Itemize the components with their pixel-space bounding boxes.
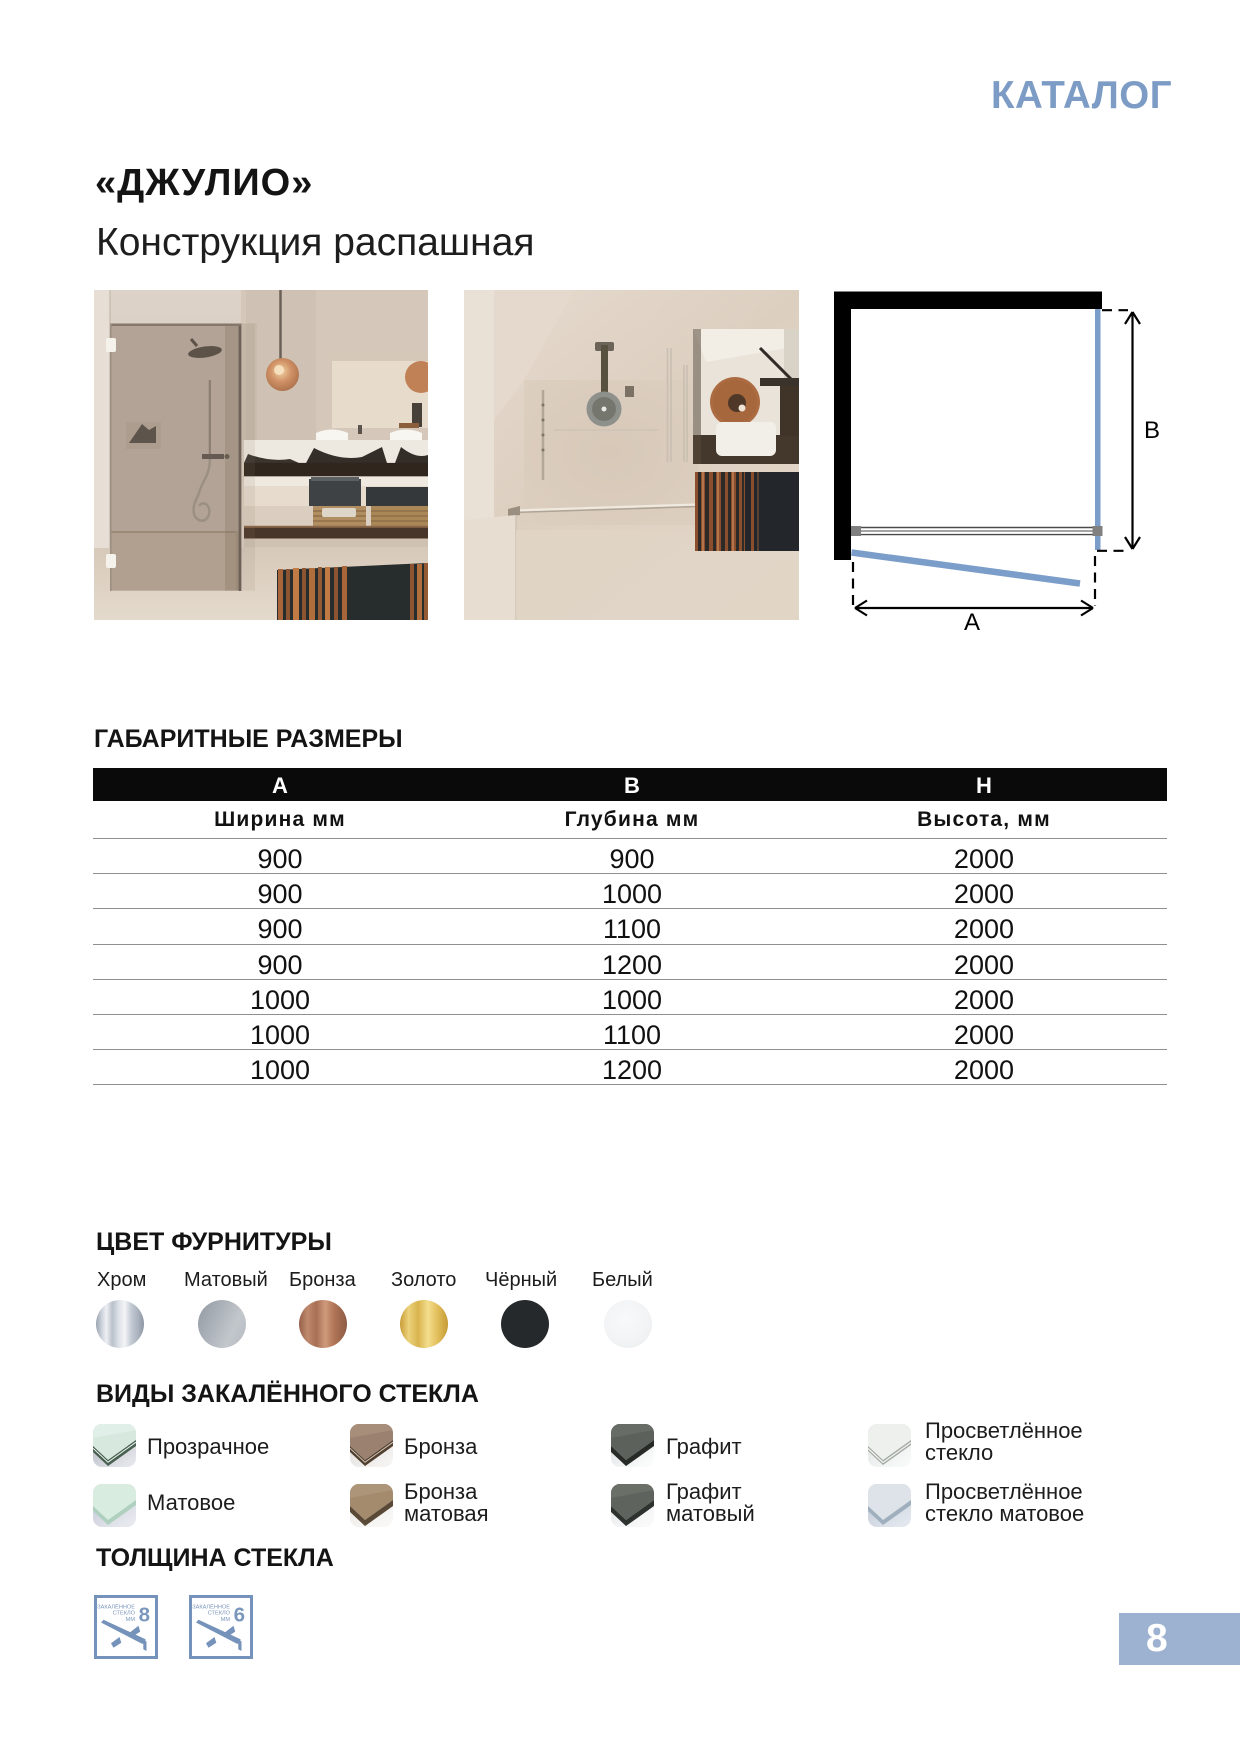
svg-text:ММ: ММ: [221, 1617, 231, 1623]
svg-text:A: A: [964, 609, 980, 636]
svg-text:B: B: [1144, 417, 1160, 444]
svg-text:СТЕКЛО: СТЕКЛО: [113, 1611, 136, 1617]
svg-text:ЗАКАЛЁННОЕ: ЗАКАЛЁННОЕ: [192, 1604, 230, 1611]
svg-text:ЗАКАЛЁННОЕ: ЗАКАЛЁННОЕ: [97, 1604, 135, 1611]
svg-text:СТЕКЛО: СТЕКЛО: [208, 1611, 231, 1617]
svg-text:6: 6: [234, 1604, 245, 1627]
svg-text:8: 8: [139, 1604, 150, 1627]
svg-text:ММ: ММ: [126, 1617, 136, 1623]
